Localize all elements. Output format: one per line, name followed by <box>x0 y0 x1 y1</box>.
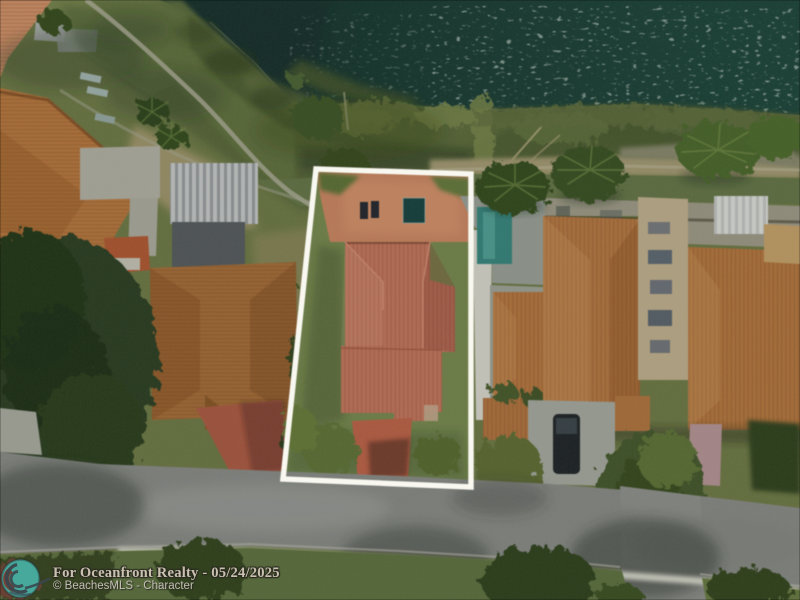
svg-text:© BeachesMLS - Character: © BeachesMLS - Character <box>53 580 194 592</box>
svg-text:For Oceanfront Realty - 05/24/: For Oceanfront Realty - 05/24/2025 <box>53 565 280 581</box>
